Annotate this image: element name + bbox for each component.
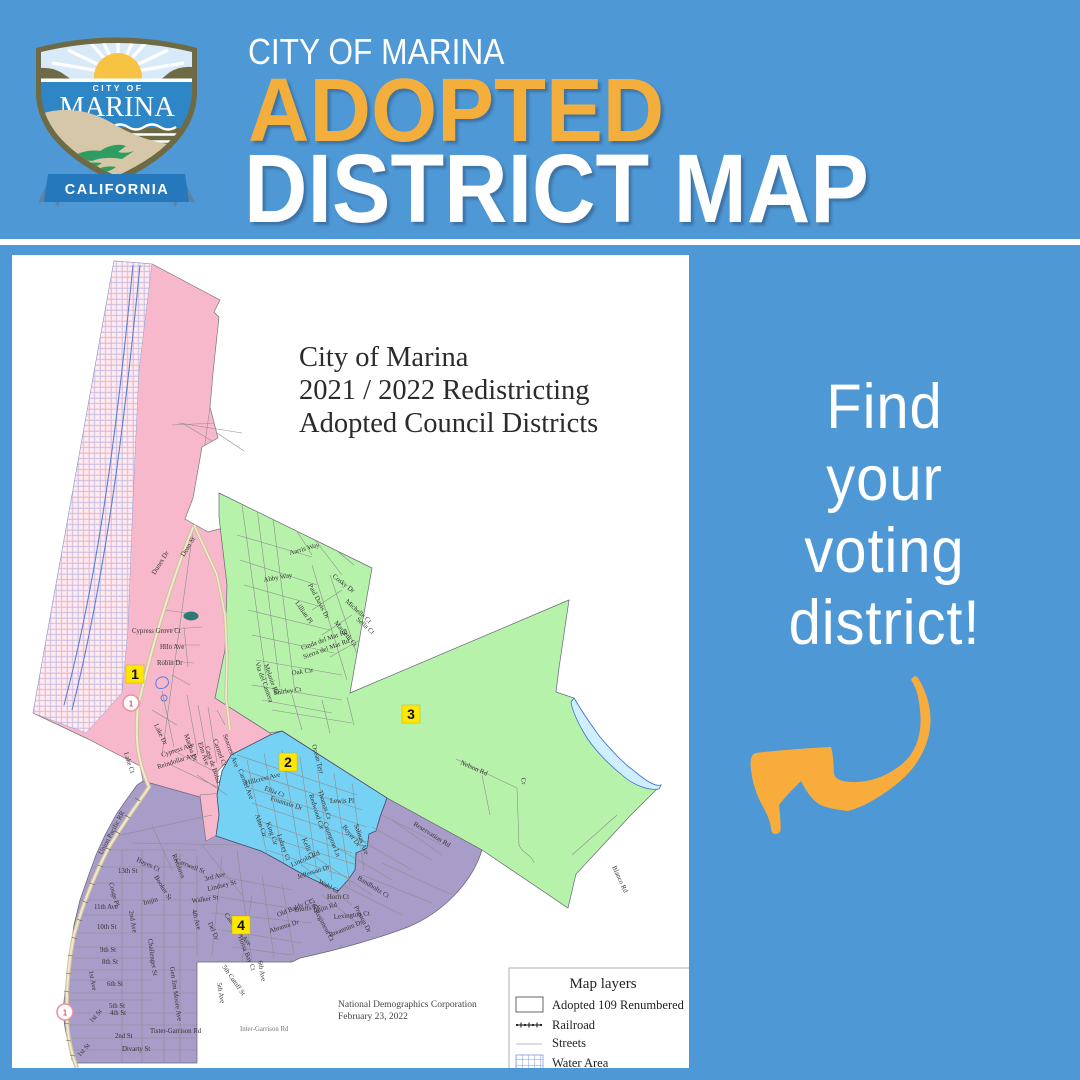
svg-text:National Demographics Corporat: National Demographics Corporation [338, 1000, 477, 1010]
svg-text:Horn Ct: Horn Ct [327, 894, 349, 901]
svg-text:Cypress Grove Ct: Cypress Grove Ct [132, 628, 181, 635]
svg-text:February 23, 2022: February 23, 2022 [338, 1012, 408, 1022]
svg-text:Water Area: Water Area [552, 1056, 609, 1068]
svg-text:Adopted 109 Renumbered: Adopted 109 Renumbered [552, 998, 685, 1012]
svg-text:6th St: 6th St [107, 981, 123, 988]
svg-text:4: 4 [237, 917, 245, 933]
svg-text:2nd St: 2nd St [115, 1033, 133, 1040]
svg-text:Inter-Garrison Rd: Inter-Garrison Rd [240, 1026, 289, 1033]
svg-text:Hilo Ave: Hilo Ave [160, 644, 184, 651]
svg-text:CALIFORNIA: CALIFORNIA [65, 182, 169, 198]
svg-text:4th St: 4th St [110, 1010, 126, 1017]
svg-text:Robin Dr: Robin Dr [157, 660, 183, 667]
svg-text:2: 2 [284, 754, 292, 770]
svg-text:8th St: 8th St [102, 959, 118, 966]
svg-text:13th St: 13th St [118, 868, 138, 875]
svg-text:5th Ave: 5th Ave [215, 982, 226, 1004]
svg-text:Railroad: Railroad [552, 1018, 596, 1032]
svg-text:Map layers: Map layers [569, 976, 636, 992]
svg-text:1: 1 [129, 700, 134, 709]
svg-text:Adopted Council Districts: Adopted Council Districts [299, 408, 598, 439]
svg-text:5th St: 5th St [109, 1003, 125, 1010]
svg-text:1: 1 [131, 666, 139, 682]
svg-text:2021 / 2022 Redistricting: 2021 / 2022 Redistricting [299, 375, 590, 406]
svg-text:3: 3 [407, 706, 415, 722]
svg-text:6th Ave: 6th Ave [256, 960, 267, 982]
svg-text:Blanco Rd: Blanco Rd [610, 865, 629, 895]
svg-text:Divarty St: Divarty St [122, 1046, 150, 1053]
svg-text:1: 1 [63, 1009, 68, 1018]
svg-text:Streets: Streets [552, 1036, 586, 1050]
svg-text:10th St: 10th St [97, 924, 117, 931]
svg-text:9th St: 9th St [100, 947, 116, 954]
svg-text:City of Marina: City of Marina [299, 342, 469, 373]
svg-text:Lewis Pl: Lewis Pl [330, 798, 354, 805]
svg-text:Tister-Garrison Rd: Tister-Garrison Rd [150, 1028, 202, 1035]
